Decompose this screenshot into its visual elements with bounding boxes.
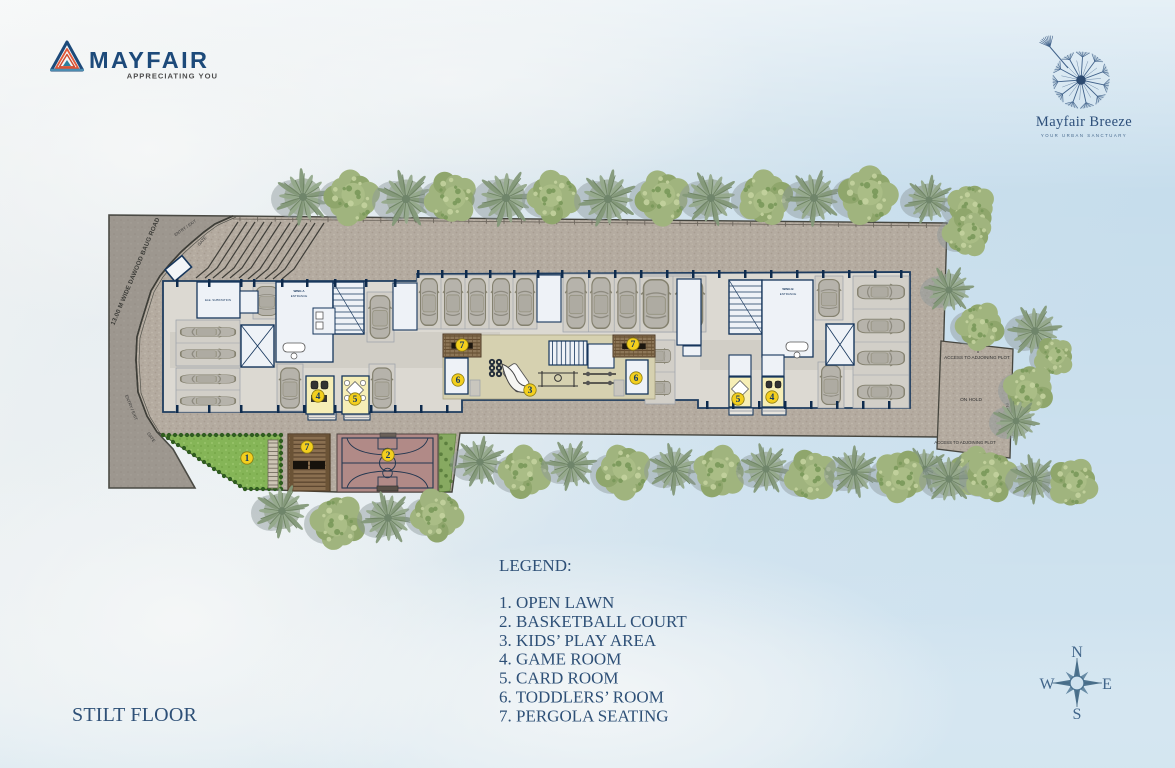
svg-text:Mayfair Breeze: Mayfair Breeze bbox=[1036, 114, 1132, 130]
svg-text:5: 5 bbox=[736, 395, 741, 405]
svg-text:3. KIDS’ PLAY AREA: 3. KIDS’ PLAY AREA bbox=[499, 631, 657, 650]
svg-text:6: 6 bbox=[634, 374, 639, 384]
svg-text:4: 4 bbox=[316, 392, 321, 402]
svg-text:7: 7 bbox=[631, 340, 636, 350]
svg-text:YOUR URBAN SANCTUARY: YOUR URBAN SANCTUARY bbox=[1041, 133, 1127, 138]
svg-text:5: 5 bbox=[353, 395, 358, 405]
svg-text:ON HOLD: ON HOLD bbox=[960, 397, 982, 403]
svg-text:1: 1 bbox=[245, 454, 250, 464]
svg-text:6: 6 bbox=[456, 376, 461, 386]
svg-text:7. PERGOLA SEATING: 7. PERGOLA SEATING bbox=[499, 706, 669, 725]
svg-text:E: E bbox=[1102, 676, 1112, 693]
svg-text:WING B: WING B bbox=[782, 287, 794, 291]
svg-text:1. OPEN LAWN: 1. OPEN LAWN bbox=[499, 593, 614, 612]
svg-text:5. CARD ROOM: 5. CARD ROOM bbox=[499, 669, 619, 688]
svg-text:2. BASKETBALL COURT: 2. BASKETBALL COURT bbox=[499, 612, 687, 631]
svg-text:APPRECIATING YOU: APPRECIATING YOU bbox=[127, 72, 218, 81]
svg-text:S: S bbox=[1073, 706, 1082, 723]
svg-text:MAYFAIR: MAYFAIR bbox=[89, 47, 209, 73]
svg-text:N: N bbox=[1071, 644, 1083, 661]
svg-text:W: W bbox=[1039, 676, 1055, 693]
svg-text:STILT FLOOR: STILT FLOOR bbox=[72, 704, 197, 726]
svg-text:LEGEND:: LEGEND: bbox=[499, 556, 572, 575]
svg-text:7: 7 bbox=[305, 443, 310, 453]
svg-text:7: 7 bbox=[460, 341, 465, 351]
svg-text:ENTRANCE: ENTRANCE bbox=[780, 292, 797, 296]
svg-text:4: 4 bbox=[770, 393, 775, 403]
svg-text:2: 2 bbox=[386, 451, 391, 461]
svg-text:3: 3 bbox=[528, 386, 533, 396]
svg-text:ELE. SUBSTATION: ELE. SUBSTATION bbox=[205, 298, 231, 302]
svg-text:4. GAME ROOM: 4. GAME ROOM bbox=[499, 650, 621, 669]
svg-text:6. TODDLERS’ ROOM: 6. TODDLERS’ ROOM bbox=[499, 688, 664, 707]
svg-text:ACCESS TO ADJOINING PLOT: ACCESS TO ADJOINING PLOT bbox=[934, 440, 996, 445]
svg-text:ACCESS TO ADJOINING PLOT: ACCESS TO ADJOINING PLOT bbox=[944, 355, 1010, 360]
svg-text:ENTRANCE: ENTRANCE bbox=[291, 294, 308, 298]
svg-text:WING A: WING A bbox=[293, 289, 305, 293]
